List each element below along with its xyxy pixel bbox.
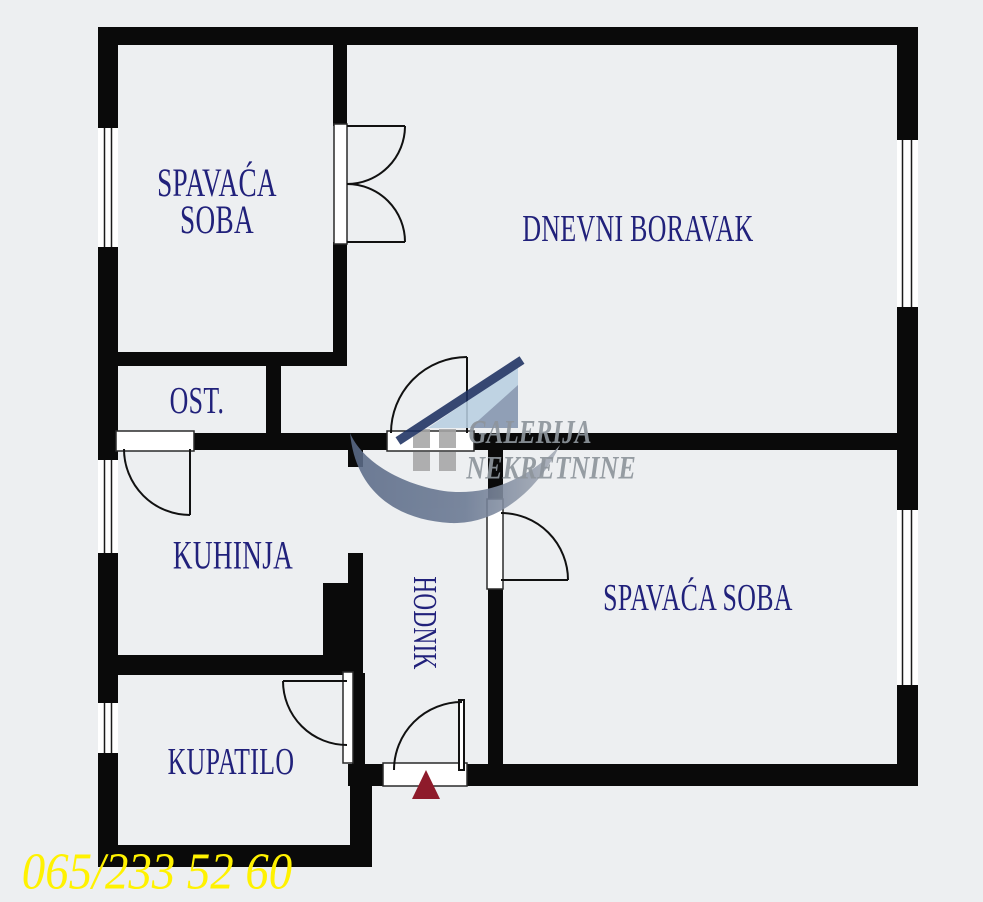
- room-label-living-room: DNEVNI BORAVAK: [522, 207, 753, 251]
- floor-plan: SPAVAĆA SOBA DNEVNI BORAVAK OST. KUHINJA…: [0, 0, 983, 900]
- window-icon: [897, 140, 918, 307]
- window-icon: [98, 703, 118, 753]
- room-label-storage: OST.: [170, 379, 225, 423]
- room-label-bedroom-right: SPAVAĆA SOBA: [603, 576, 793, 620]
- window-icon: [98, 128, 118, 247]
- room-label-bedroom-top-line2: SOBA: [157, 201, 277, 238]
- bathroom-door-panel: [343, 672, 353, 763]
- room-label-kitchen: KUHINJA: [173, 532, 293, 579]
- room-label-hallway: HODNIK: [405, 576, 443, 669]
- storage-door-sill: [116, 431, 194, 451]
- room-label-bathroom: KUPATILO: [168, 740, 295, 784]
- phone-number: 065/233 52 60: [22, 843, 292, 902]
- double-door-panel: [334, 124, 347, 244]
- window-icon: [98, 460, 118, 553]
- window-icon: [897, 510, 918, 685]
- watermark-line1: GALERIJA: [468, 414, 591, 452]
- room-label-bedroom-top: SPAVAĆA SOBA: [157, 164, 277, 238]
- room-label-bedroom-top-line1: SPAVAĆA: [157, 164, 277, 201]
- watermark-line2: NEKRETNINE: [466, 451, 636, 488]
